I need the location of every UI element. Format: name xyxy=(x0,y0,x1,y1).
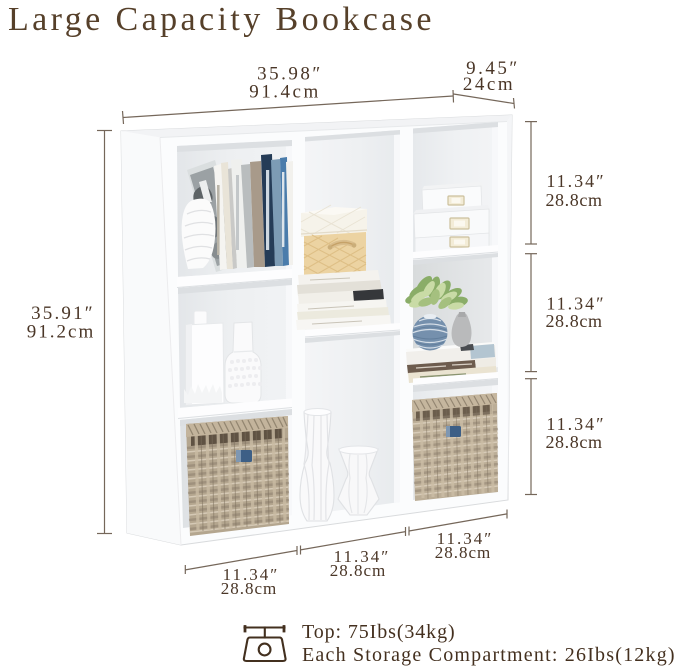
svg-text:28.8cm: 28.8cm xyxy=(435,543,492,562)
svg-text:Large Capacity Bookcase: Large Capacity Bookcase xyxy=(8,1,435,38)
svg-text:11.34″: 11.34″ xyxy=(546,414,605,434)
svg-text:11.34″: 11.34″ xyxy=(546,171,605,191)
svg-text:91.4cm: 91.4cm xyxy=(249,82,320,103)
svg-text:Top: 75Ibs(34kg): Top: 75Ibs(34kg) xyxy=(302,621,456,643)
svg-text:28.8cm: 28.8cm xyxy=(545,311,602,331)
svg-text:24cm: 24cm xyxy=(463,74,515,95)
svg-text:Each Storage Compartment: 26Ib: Each Storage Compartment: 26Ibs(12kg) xyxy=(302,644,676,666)
svg-text:28.8cm: 28.8cm xyxy=(545,432,602,452)
svg-text:28.8cm: 28.8cm xyxy=(221,579,278,598)
svg-text:91.2cm: 91.2cm xyxy=(27,322,95,343)
svg-text:28.8cm: 28.8cm xyxy=(545,190,602,210)
svg-text:28.8cm: 28.8cm xyxy=(330,561,387,580)
